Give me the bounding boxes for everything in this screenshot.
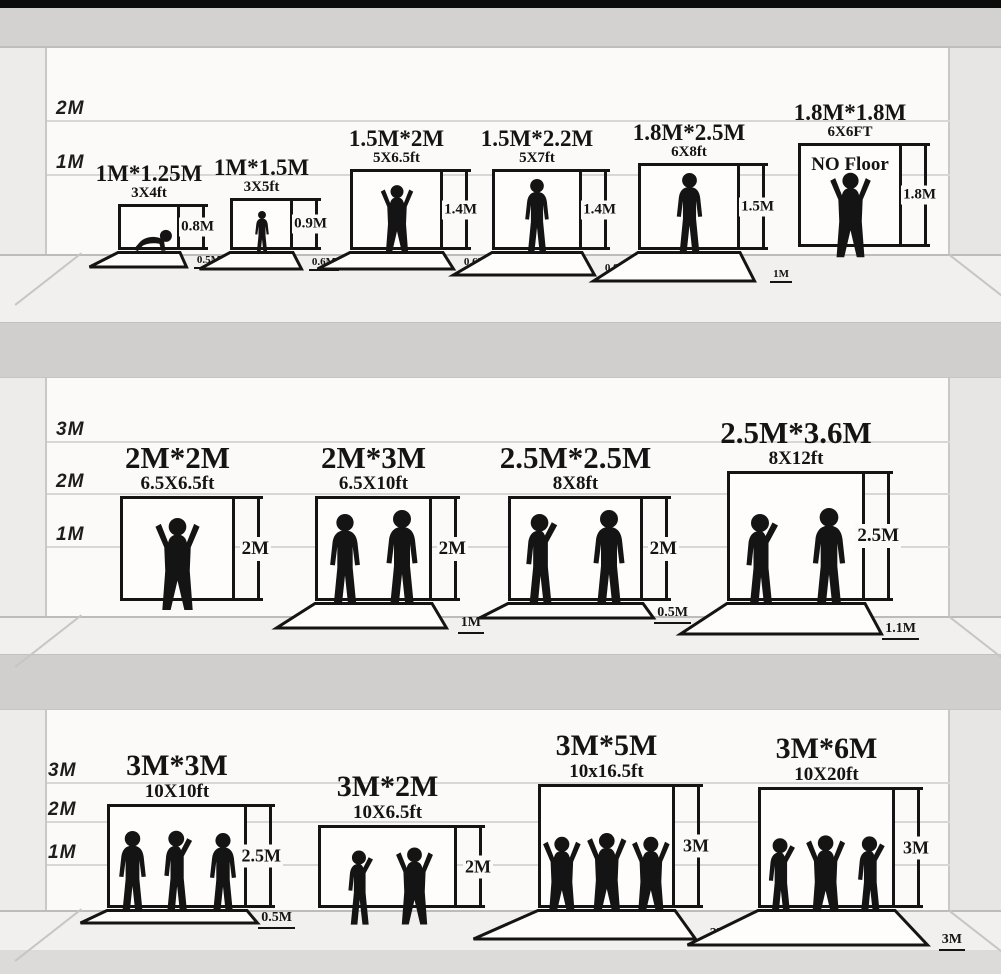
scale-label-3m: 3M <box>56 419 84 441</box>
backdrop-frame: 1.4M <box>350 169 443 250</box>
silhouette-figures <box>511 510 640 610</box>
person-silhouette <box>518 179 556 255</box>
height-dimension: 3M <box>895 787 923 908</box>
bottom-band <box>0 950 1001 974</box>
person-silhouette <box>202 833 244 917</box>
person-silhouette <box>321 514 369 610</box>
silhouette-figures <box>233 211 290 255</box>
backdrop-frame: 2.5M <box>107 804 247 908</box>
person-silhouette <box>584 510 634 610</box>
backdrop-1m-1-25m: 1M*1.25M 3X4ft 0.8M 0.5M <box>118 204 180 250</box>
person-silhouette <box>377 510 427 610</box>
backdrop-subtitle: 10X6.5ft <box>242 803 534 822</box>
scale-label-1m: 1M <box>48 842 76 864</box>
backdrop-subtitle: 6X8ft <box>582 145 796 160</box>
backdrop-frame: NO Floor 1.8M <box>798 143 902 247</box>
silhouette-figures <box>318 510 429 610</box>
backdrop-subtitle: 6X6FT <box>741 125 959 140</box>
scale-label-2m: 2M <box>56 98 84 120</box>
floor-mat <box>88 251 188 269</box>
person-silhouette <box>517 512 566 610</box>
floor-mat <box>452 251 596 277</box>
backdrop-frame: 3M <box>758 787 895 908</box>
backdrop-1-8m-1-8m: 1.8M*1.8M 6X6FT NO Floor 1.8M <box>798 143 902 247</box>
person-silhouette <box>156 829 200 917</box>
right-wall <box>948 378 1001 654</box>
height-dimension: 3M <box>675 784 703 908</box>
floor-mat <box>478 602 655 620</box>
backdrop-frame: 2M <box>508 496 643 601</box>
backdrop-title: 2.5M*3.6M <box>651 417 941 449</box>
floor-mat <box>592 251 756 283</box>
floor-dimension: 1.1M <box>882 621 919 640</box>
floor-dimension: 1M <box>770 268 792 283</box>
person-silhouette <box>394 845 435 927</box>
backdrop-2-5m-2-5m: 2.5M*2.5M 8X8ft 2M 0.5M <box>508 496 643 601</box>
backdrop-frame: 0.8M <box>118 204 180 250</box>
backdrop-1-8m-2-5m: 1.8M*2.5M 6X8ft 1.5M 1M <box>638 163 740 250</box>
height-dimension: 2M <box>457 825 485 908</box>
person-silhouette <box>630 831 672 921</box>
backdrop-subtitle: 10X20ft <box>683 765 971 784</box>
floor-dimension: 3M <box>939 932 965 951</box>
silhouette-figures <box>641 173 737 255</box>
floor-dimension: 0.5M <box>258 910 295 929</box>
silhouette-figures <box>801 170 899 260</box>
person-silhouette <box>251 211 273 255</box>
silhouette-figures <box>321 845 454 927</box>
person-silhouette <box>803 508 855 612</box>
height-dimension: 2M <box>432 496 460 601</box>
backdrop-subtitle: 8X12ft <box>651 449 941 468</box>
top-shelf-band <box>0 8 1001 48</box>
backdrop-frame: 2M <box>120 496 235 601</box>
backdrop-3m-6m: 3M*6M 10X20ft 3M 3M <box>758 787 895 908</box>
top-black-bar <box>0 0 1001 8</box>
person-silhouette <box>585 827 629 921</box>
backdrop-frame: 2.5M <box>727 471 865 601</box>
height-dimension: 2M <box>643 496 671 601</box>
person-silhouette <box>737 512 787 612</box>
height-dimension: 1.4M <box>443 169 471 250</box>
floor-mat <box>198 251 303 271</box>
backdrop-title: 3M*6M <box>683 734 971 765</box>
person-silhouette <box>341 849 380 927</box>
person-silhouette <box>828 170 873 260</box>
person-silhouette <box>379 183 415 255</box>
scale-label-2m: 2M <box>48 799 76 821</box>
silhouette-figures <box>353 183 440 255</box>
backdrop-frame: 2M <box>315 496 432 601</box>
floor-mat <box>472 909 697 941</box>
height-dimension: 0.8M <box>180 204 208 250</box>
backdrop-2-5m-3-6m: 2.5M*3.6M 8X12ft 2.5M 1.1M <box>727 471 865 601</box>
silhouette-figures <box>495 179 579 255</box>
scale-label-1m: 1M <box>56 152 84 174</box>
backdrop-1-5m-2m: 1.5M*2M 5X6.5ft 1.4M 0.6M <box>350 169 443 250</box>
backdrop-subtitle: 8X8ft <box>434 474 718 493</box>
shelf-divider <box>0 654 1001 710</box>
backdrop-1-5m-2-2m: 1.5M*2.2M 5X7ft 1.4M 0.8M <box>492 169 582 250</box>
height-dimension: 1.4M <box>582 169 610 250</box>
height-dimension: 0.9M <box>293 198 321 250</box>
silhouette-figures <box>110 829 244 917</box>
left-wall <box>0 378 47 654</box>
backdrop-2m-2m: 2M*2M 6.5X6.5ft 2M <box>120 496 235 601</box>
backdrop-1m-1-5m: 1M*1.5M 3X5ft 0.9M 0.6M <box>230 198 293 250</box>
person-silhouette <box>669 173 710 255</box>
floor-mat <box>679 602 883 636</box>
backdrop-3m-2m: 3M*2M 10X6.5ft 2M <box>318 825 457 908</box>
backdrop-frame: 1.4M <box>492 169 582 250</box>
floor-mat <box>686 909 929 947</box>
backdrop-frame: 1.5M <box>638 163 740 250</box>
backdrop-subtitle: 3X5ft <box>195 180 327 195</box>
person-silhouette <box>111 831 154 917</box>
backdrop-frame: 0.9M <box>230 198 293 250</box>
silhouette-figures <box>541 827 672 921</box>
backdrop-3m-5m: 3M*5M 10x16.5ft 3M 2M <box>538 784 675 908</box>
backdrop-3m-3m: 3M*3M 10X10ft 2.5M 0.5M <box>107 804 247 908</box>
person-silhouette <box>541 831 583 921</box>
height-dimension: 1.5M <box>740 163 768 250</box>
person-silhouette <box>129 229 175 253</box>
backdrop-title: 1.8M*1.8M <box>741 101 959 124</box>
shelf-row-1: 2M 1M 1M*1.25M 3X4ft 0.8M 0.5M 1M*1.5M 3… <box>0 48 1001 322</box>
silhouette-figures <box>121 229 177 253</box>
height-dimension: 2.5M <box>865 471 893 601</box>
backdrop-frame: 2M <box>318 825 457 908</box>
scale-label-1m: 1M <box>56 524 84 546</box>
backdrop-size-chart: 2M 1M 1M*1.25M 3X4ft 0.8M 0.5M 1M*1.5M 3… <box>0 0 1001 970</box>
backdrop-frame: 3M <box>538 784 675 908</box>
backdrop-2m-3m: 2M*3M 6.5X10ft 2M 1M <box>315 496 432 601</box>
shelf-divider <box>0 322 1001 378</box>
shelf-row-3: 3M 2M 1M 3M*3M 10X10ft 2.5M 0.5M 3M*2M 1… <box>0 710 1001 950</box>
floor-mat <box>316 251 455 271</box>
height-dimension: 2M <box>235 496 263 601</box>
floor-mat <box>275 602 448 630</box>
shelf-row-2: 3M 2M 1M 2M*2M 6.5X6.5ft 2M 2M*3M 6.5X10… <box>0 378 1001 654</box>
silhouette-figures <box>123 515 232 613</box>
height-dimension: 1.8M <box>902 143 930 247</box>
floor-mat <box>79 909 259 925</box>
silhouette-figures <box>730 508 862 612</box>
person-silhouette <box>153 515 202 613</box>
